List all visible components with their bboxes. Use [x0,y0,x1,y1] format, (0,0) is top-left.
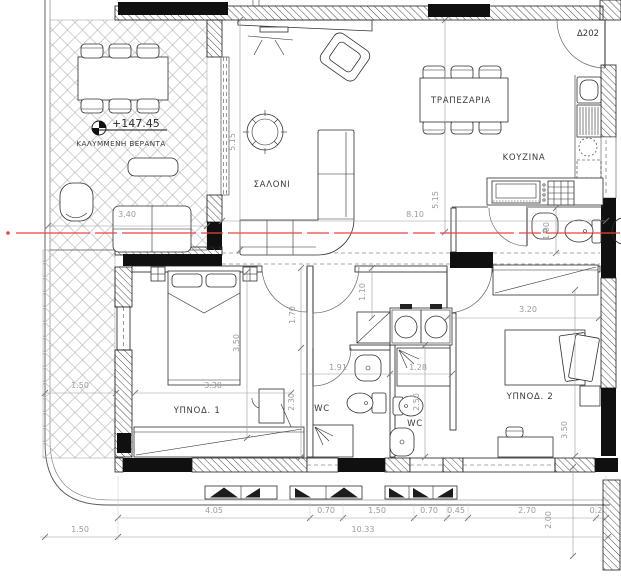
double-washbasin [390,304,452,345]
column [428,4,490,17]
dim-bottom-3: 1.50 [368,506,386,515]
nightstand [151,267,165,281]
room-label-living: ΣΑΛΟΝΙ [254,180,291,190]
dim-hall: 1.10 [358,283,367,301]
window [307,458,338,472]
apartment-number: Δ202 [577,29,599,39]
dim-bottom-offset: 1.50 [71,525,89,534]
dim-wc1-width: 1.91 [329,363,347,372]
dim-kitchen-wc: 1.00 [542,222,551,240]
dishwasher [579,138,597,156]
corridor-door [313,267,359,313]
dim-bed2-depth: 3.50 [560,421,569,439]
column [601,388,616,456]
washbasin [355,355,381,381]
window-symbol [205,486,277,499]
room-label-wc2: WC [407,419,423,429]
toilet [565,220,601,243]
dim-bed1-width: 3.30 [204,381,222,390]
window [410,458,443,472]
dim-bed2-width: 3.20 [519,305,537,314]
dim-bed1-depth: 3.50 [232,334,241,352]
living-room-furniture [238,20,373,255]
column [450,252,493,268]
dim-balcony-depth: 2.00 [544,511,553,529]
shower [313,425,353,457]
side-table [580,386,600,406]
toilet [347,393,373,413]
column [123,458,192,472]
armchair [317,30,372,84]
window-symbol [290,486,362,499]
desk [498,427,553,457]
column [118,2,228,15]
corner-sofa [240,130,354,255]
dim-living-depth: 5.15 [228,133,237,151]
pillow [172,274,202,287]
single-bed [505,330,600,385]
washbasin [390,428,414,456]
column [207,222,222,250]
sliding-glass-door [221,57,229,195]
dim-wc2-depth: 2.50 [412,393,421,411]
dim-veranda: 3.40 [118,210,136,219]
dim-bottom-2: 0.70 [317,506,335,515]
wardrobe [134,427,304,457]
entrance-door [557,20,605,68]
room-label-bedroom1: ΥΠΝΟΔ. 1 [173,406,221,416]
dim-balcony-left: 1.50 [71,381,89,390]
dim-bottom-total: 10.33 [352,525,375,534]
kitchen-wc-door [489,208,527,246]
room-label-kitchen: ΚΟΥΖΙΝΑ [503,153,546,163]
microwave [492,181,540,203]
bedroom2-furniture [493,265,600,457]
floor-plan-drawing: +147.45 ΚΑΛΥΜΜΕΝΗ ΒΕΡΑΝΤΑ ΣΑΛΟΝΙ ΤΡΑΠΕΖΑ… [0,0,621,582]
dim-living-width: 8.10 [406,210,424,219]
oven-unit [577,105,601,137]
tv-cabinet [238,20,372,31]
round-table [243,110,287,154]
dim-wc2-width: 1.28 [409,363,427,372]
wardrobe [493,265,598,295]
outdoor-armchair [60,183,93,221]
room-label-dining: ΤΡΑΠΕΖΑΡΙΑ [430,96,491,106]
dim-wc1-depth: 2.30 [287,393,296,411]
pillow [206,274,236,287]
tv [260,27,288,32]
column [338,458,385,472]
dim-bottom-4: 0.70 [420,506,438,515]
window [463,458,555,472]
dim-bottom-1: 4.05 [205,506,223,515]
dim-bottom-6: 2.70 [518,506,536,515]
column [123,254,222,266]
bedroom2-door [447,268,492,313]
bath-core [313,304,452,457]
dim-bottom-5: 0.45 [447,506,465,515]
room-label-wc1: WC [314,404,330,414]
room-label-bedroom2: ΥΠΝΟΔ. 2 [506,392,554,402]
dim-bottom-7: 0.2 [590,506,603,515]
column [117,433,131,453]
dim-corridor: 1.70 [288,306,297,324]
outdoor-table [78,57,168,100]
column [595,458,618,472]
window-symbol [385,486,457,499]
double-bed [168,271,240,385]
floor-plan-page: +147.45 ΚΑΛΥΜΜΕΝΗ ΒΕΡΑΝΤΑ ΣΑΛΟΝΙ ΤΡΑΠΕΖΑ… [0,0,621,582]
desk-lamp [506,427,523,437]
bedroom1-furniture [134,267,304,457]
bedroom1-door [262,267,307,312]
cabinet [577,160,601,178]
room-label-veranda: ΚΑΛΥΜΜΕΝΗ ΒΕΡΑΝΤΑ [76,139,165,148]
coffee-table [128,158,178,176]
elevation-label: +147.45 [112,117,160,130]
window-symbols [205,486,457,499]
ceiling-light [248,36,293,55]
dim-dining-depth: 5.15 [431,191,440,209]
window [117,307,130,350]
